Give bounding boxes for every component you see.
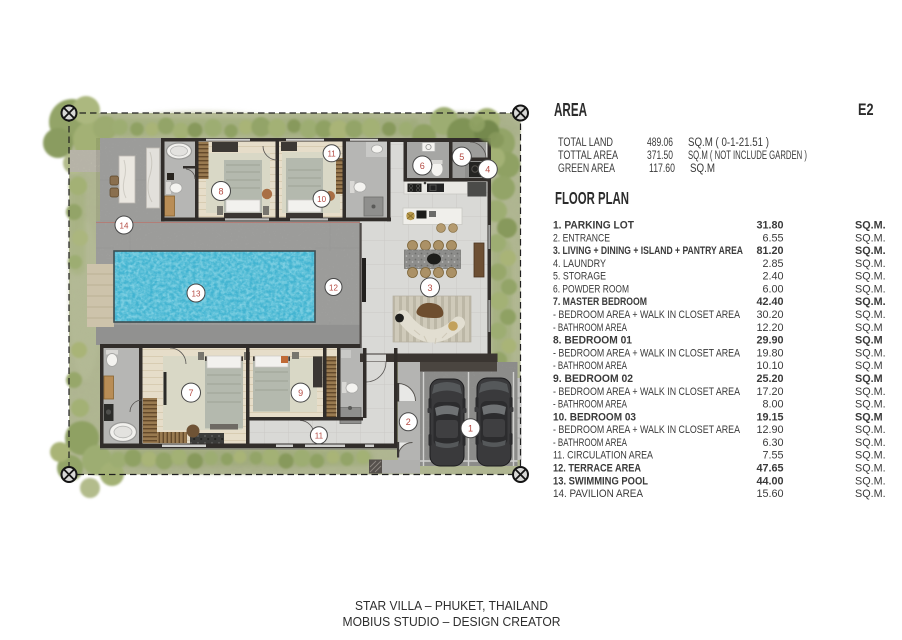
svg-text:2.85: 2.85 (762, 258, 783, 270)
svg-text:8.00: 8.00 (762, 399, 783, 411)
svg-text:- BEDROOM AREA + WALK IN CLOSE: - BEDROOM AREA + WALK IN CLOSET AREA (553, 347, 741, 359)
svg-text:SQ.M.: SQ.M. (855, 386, 886, 398)
svg-text:13: 13 (192, 289, 201, 298)
svg-text:6.00: 6.00 (762, 283, 783, 295)
svg-text:8. BEDROOM 01: 8. BEDROOM 01 (553, 335, 632, 347)
svg-text:8: 8 (218, 186, 223, 196)
svg-text:42.40: 42.40 (756, 296, 783, 308)
svg-text:SQ.M: SQ.M (690, 163, 715, 175)
svg-text:7.55: 7.55 (762, 450, 783, 462)
svg-text:6.55: 6.55 (762, 232, 783, 244)
svg-text:13. SWIMMING POOL: 13. SWIMMING POOL (553, 475, 648, 487)
svg-text:14. PAVILION AREA: 14. PAVILION AREA (553, 488, 644, 500)
svg-text:SQ.M: SQ.M (855, 322, 883, 334)
svg-text:SQ.M.: SQ.M. (855, 450, 886, 462)
svg-text:11: 11 (327, 150, 336, 159)
svg-text:7: 7 (188, 388, 193, 398)
svg-text:4. LAUNDRY: 4. LAUNDRY (553, 258, 606, 270)
svg-text:3. LIVING + DINING + ISLAND +: 3. LIVING + DINING + ISLAND + PANTRY ARE… (553, 245, 743, 257)
svg-text:2.40: 2.40 (762, 271, 783, 283)
svg-text:30.20: 30.20 (756, 309, 783, 321)
svg-text:- BEDROOM AREA + WALK IN CLOS: - BEDROOM AREA + WALK IN CLOSET AREA (553, 309, 741, 321)
svg-text:2: 2 (406, 417, 411, 427)
svg-text:AREA: AREA (554, 99, 587, 120)
svg-text:10: 10 (317, 195, 326, 204)
svg-text:31.80: 31.80 (756, 220, 783, 232)
svg-text:47.65: 47.65 (756, 463, 783, 475)
svg-text:4: 4 (485, 165, 490, 175)
svg-text:STAR VILLA – PHUKET, THAILAND: STAR VILLA – PHUKET, THAILAND (355, 598, 548, 613)
svg-text:SQ.M.: SQ.M. (855, 220, 886, 232)
svg-text:2. ENTRANCE: 2. ENTRANCE (553, 232, 610, 244)
svg-text:29.90: 29.90 (756, 335, 783, 347)
svg-text:SQ.M ( NOT INCLUDE GARDEN ): SQ.M ( NOT INCLUDE GARDEN ) (688, 150, 807, 162)
svg-text:12.20: 12.20 (756, 322, 783, 334)
svg-text:TOTAL LAND: TOTAL LAND (558, 137, 613, 149)
svg-text:SQ.M.: SQ.M. (855, 475, 886, 487)
svg-text:12.90: 12.90 (756, 424, 783, 436)
svg-text:TOTTAL AREA: TOTTAL AREA (558, 150, 618, 162)
svg-text:117.60: 117.60 (649, 163, 675, 175)
svg-text:MOBIUS STUDIO – DESIGN CREATOR: MOBIUS STUDIO – DESIGN CREATOR (343, 614, 561, 629)
svg-text:371.50: 371.50 (647, 150, 673, 162)
svg-text:SQ.M.: SQ.M. (855, 309, 886, 321)
svg-text:SQ.M: SQ.M (855, 360, 883, 372)
svg-text:6.30: 6.30 (762, 437, 783, 449)
svg-text:SQ.M.: SQ.M. (855, 347, 886, 359)
svg-text:5: 5 (459, 152, 464, 162)
svg-text:SQ.M.: SQ.M. (855, 437, 886, 449)
svg-text:19.80: 19.80 (756, 347, 783, 359)
svg-text:7. MASTER BEDROOM: 7. MASTER BEDROOM (553, 296, 647, 308)
svg-text:SQ.M.: SQ.M. (855, 245, 886, 257)
svg-text:SQ.M: SQ.M (855, 335, 883, 347)
svg-text:SQ.M.: SQ.M. (855, 463, 886, 475)
svg-text:- BATHROOM AREA: - BATHROOM AREA (553, 360, 628, 372)
svg-text:12: 12 (329, 283, 338, 292)
svg-text:3: 3 (427, 283, 432, 293)
svg-text:SQ.M.: SQ.M. (855, 424, 886, 436)
svg-text:- BATHROOM AREA: - BATHROOM AREA (553, 322, 628, 334)
svg-text:SQ.M: SQ.M (855, 411, 883, 423)
svg-text:SQ.M.: SQ.M. (855, 232, 886, 244)
svg-text:19.15: 19.15 (756, 411, 783, 423)
svg-text:GREEN AREA: GREEN AREA (558, 163, 615, 175)
svg-text:SQ.M ( 0-1-21.51 ): SQ.M ( 0-1-21.51 ) (688, 137, 769, 149)
svg-text:9: 9 (298, 388, 303, 398)
svg-text:- BEDROOM AREA + WALK IN CLOSE: - BEDROOM AREA + WALK IN CLOSET AREA (553, 424, 741, 436)
svg-text:44.00: 44.00 (756, 475, 783, 487)
svg-text:5. STORAGE: 5. STORAGE (553, 271, 606, 283)
svg-text:1: 1 (468, 424, 473, 434)
svg-text:489.06: 489.06 (647, 137, 673, 149)
svg-text:SQ.M.: SQ.M. (855, 258, 886, 270)
svg-text:6. POWDER ROOM: 6. POWDER ROOM (553, 283, 629, 295)
svg-text:25.20: 25.20 (756, 373, 783, 385)
svg-text:1. PARKING LOT: 1. PARKING LOT (553, 220, 634, 232)
svg-text:SQ.M.: SQ.M. (855, 399, 886, 411)
svg-text:SQ.M: SQ.M (855, 373, 883, 385)
svg-text:- BATHROOM AREA: - BATHROOM AREA (553, 437, 628, 449)
svg-text:12. TERRACE AREA: 12. TERRACE AREA (553, 463, 641, 475)
svg-text:FLOOR PLAN: FLOOR PLAN (555, 188, 629, 208)
svg-text:SQ.M.: SQ.M. (855, 296, 886, 308)
svg-text:11: 11 (315, 432, 324, 441)
svg-text:- BEDROOM AREA + WALK IN CLOSE: - BEDROOM AREA + WALK IN CLOSET AREA (553, 386, 741, 398)
svg-text:6: 6 (420, 161, 425, 171)
svg-text:81.20: 81.20 (756, 245, 783, 257)
svg-text:17.20: 17.20 (756, 386, 783, 398)
svg-text:SQ.M.: SQ.M. (855, 283, 886, 295)
svg-text:10. BEDROOM 03: 10. BEDROOM 03 (553, 411, 636, 423)
svg-text:14: 14 (120, 221, 129, 230)
svg-text:- BATHROOM AREA: - BATHROOM AREA (553, 399, 628, 411)
svg-text:11. CIRCULATION AREA: 11. CIRCULATION AREA (553, 450, 654, 462)
svg-text:10.10: 10.10 (756, 360, 783, 372)
svg-text:15.60: 15.60 (756, 488, 783, 500)
svg-text:9. BEDROOM 02: 9. BEDROOM 02 (553, 373, 633, 385)
svg-text:SQ.M.: SQ.M. (855, 271, 886, 283)
svg-text:SQ.M.: SQ.M. (855, 488, 886, 500)
svg-text:E2: E2 (858, 100, 874, 119)
